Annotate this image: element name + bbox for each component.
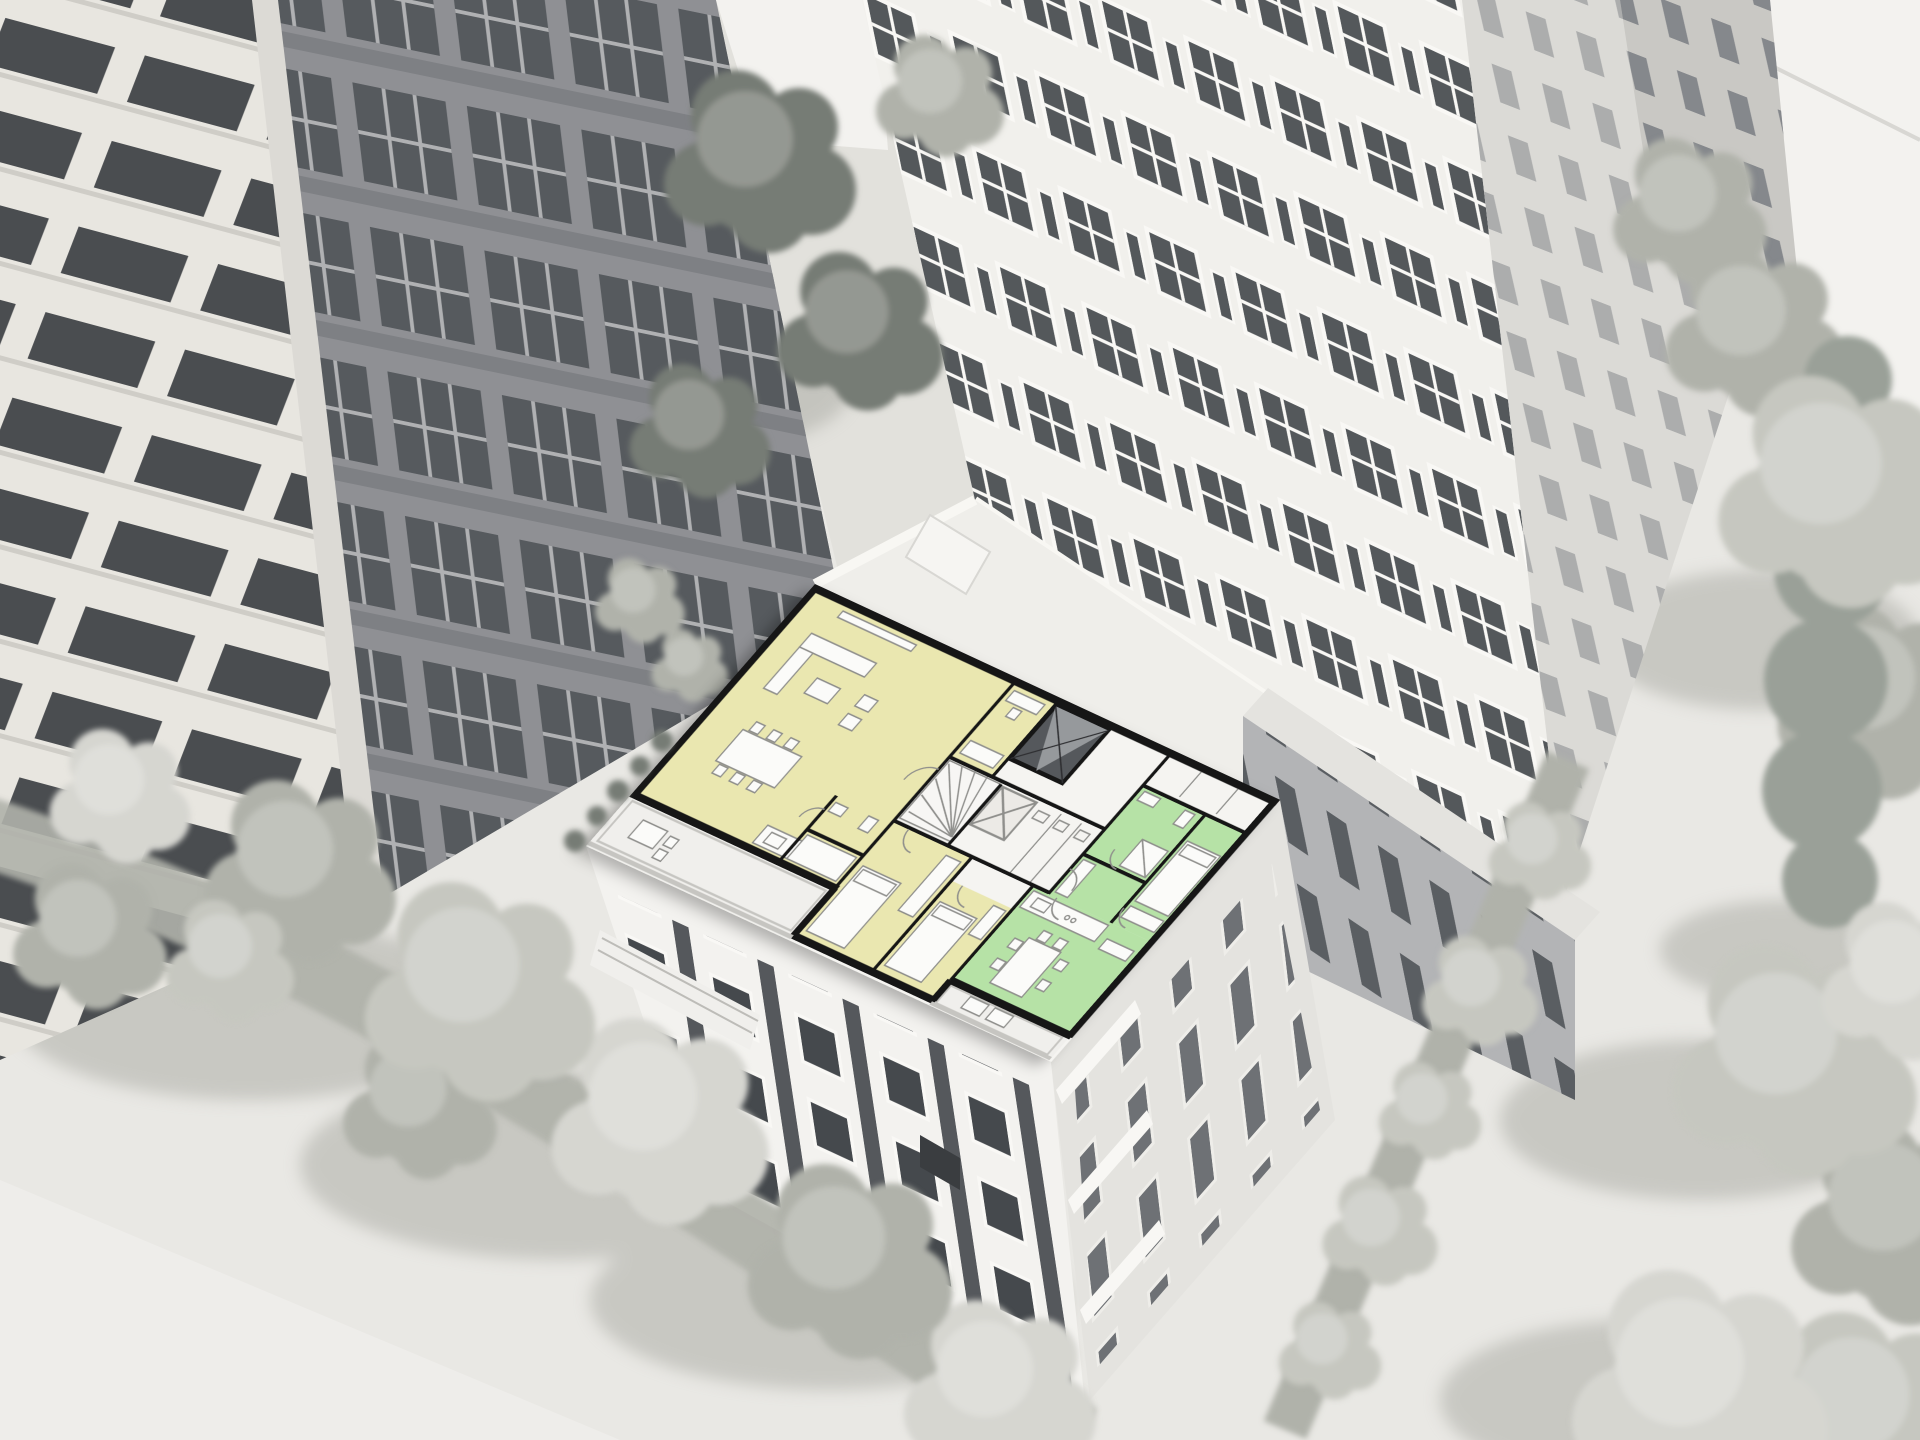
conifer-tree [1762, 730, 1882, 850]
render-canvas [0, 0, 1920, 1440]
conifer-tree [1764, 618, 1888, 742]
